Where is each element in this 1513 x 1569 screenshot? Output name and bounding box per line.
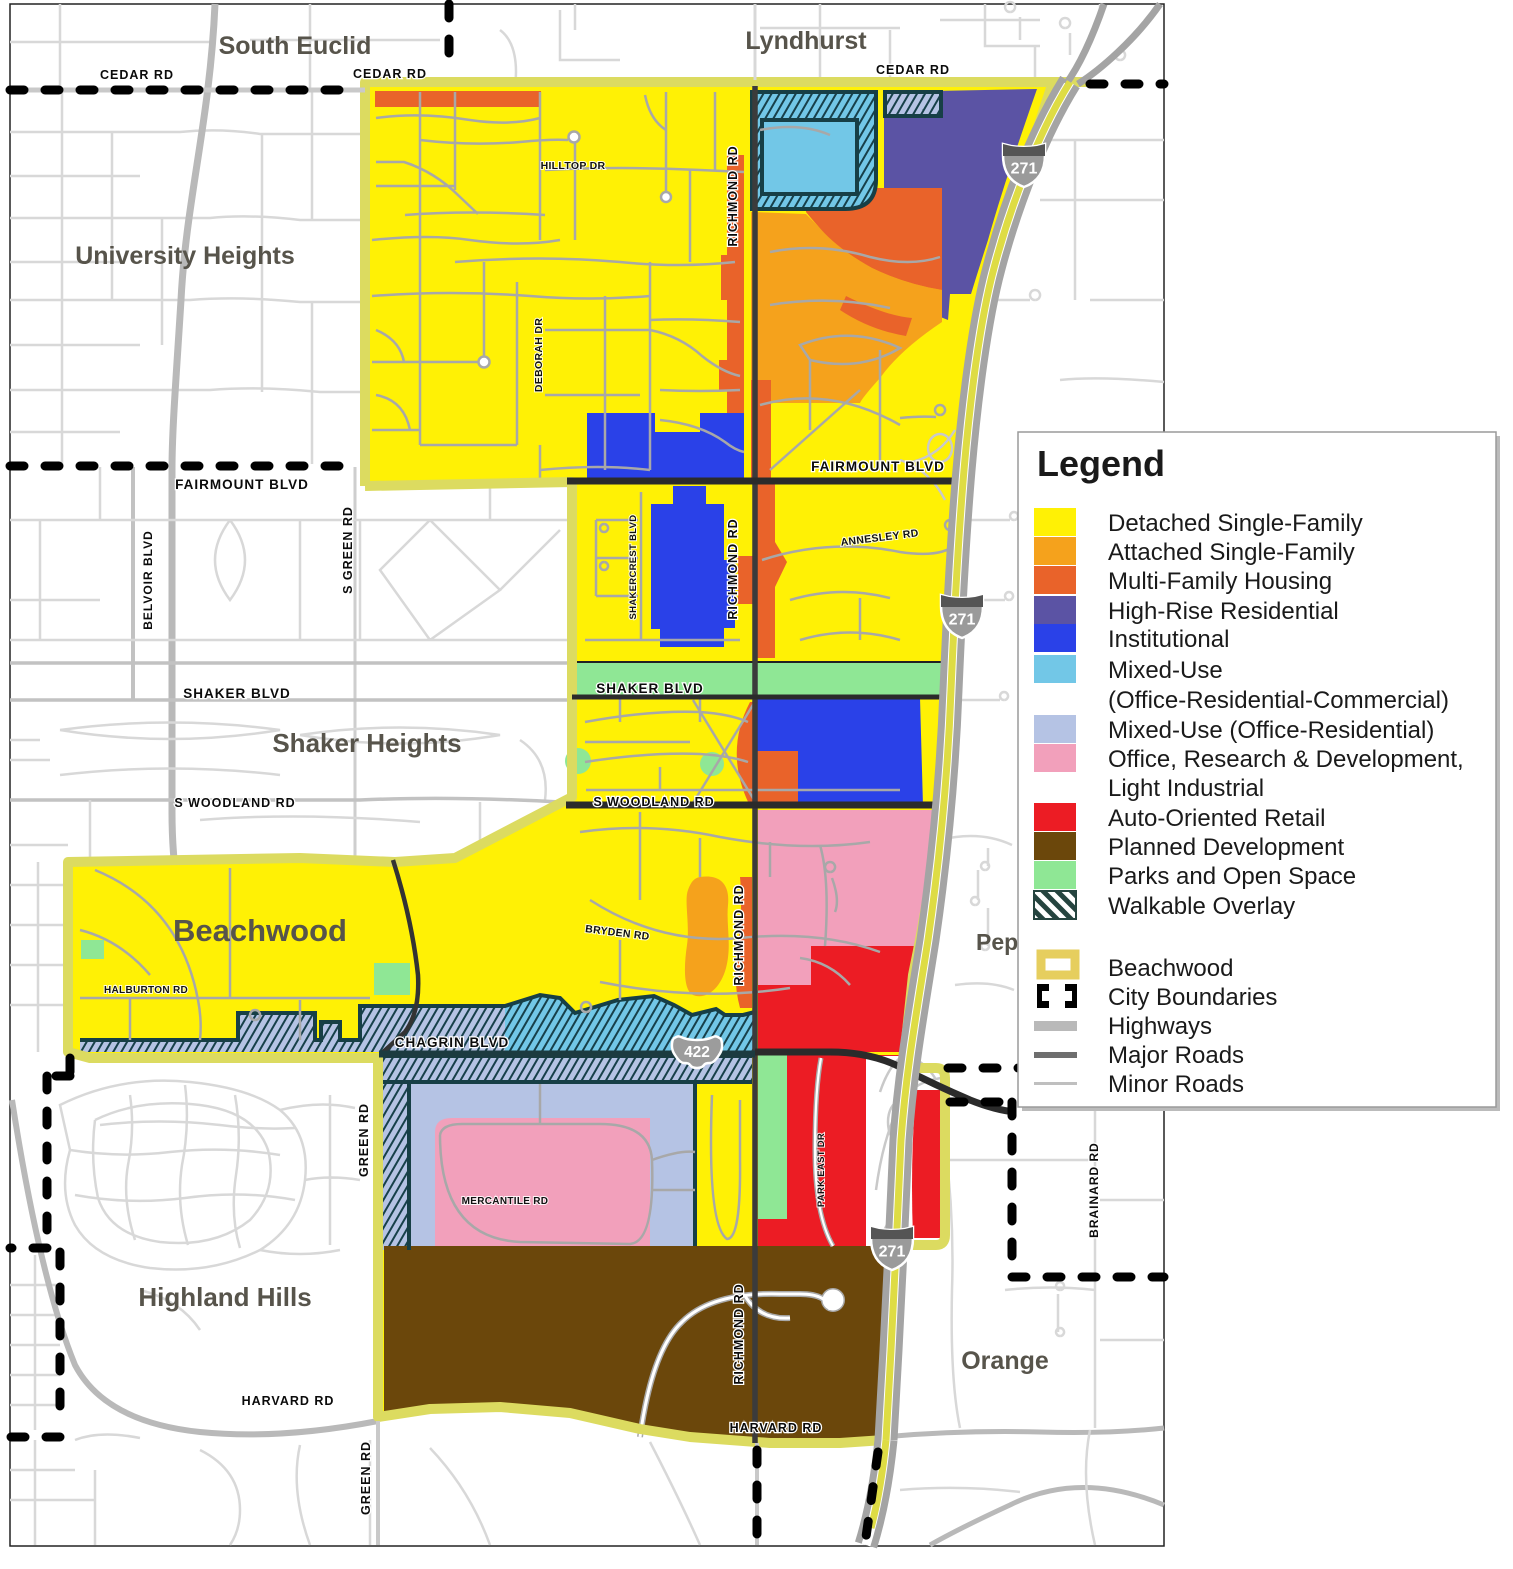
svg-text:FAIRMOUNT BLVD: FAIRMOUNT BLVD: [811, 459, 945, 474]
svg-text:Attached Single-Family: Attached Single-Family: [1108, 539, 1355, 566]
svg-text:SHAKER BLVD: SHAKER BLVD: [183, 686, 291, 701]
svg-text:Multi-Family Housing: Multi-Family Housing: [1108, 568, 1332, 595]
svg-text:MERCANTILE RD: MERCANTILE RD: [462, 1196, 549, 1207]
svg-text:CEDAR RD: CEDAR RD: [876, 63, 950, 77]
svg-text:CEDAR RD: CEDAR RD: [100, 68, 174, 82]
svg-text:High-Rise Residential: High-Rise Residential: [1108, 598, 1339, 625]
svg-text:PARK EAST DR: PARK EAST DR: [816, 1133, 827, 1207]
svg-text:Planned Development: Planned Development: [1108, 834, 1344, 861]
svg-text:Highland Hills: Highland Hills: [138, 1282, 311, 1312]
svg-text:Detached Single-Family: Detached Single-Family: [1108, 510, 1363, 537]
svg-text:S GREEN RD: S GREEN RD: [341, 506, 355, 594]
svg-text:Office, Research & Development: Office, Research & Development,: [1108, 746, 1464, 773]
svg-text:RICHMOND RD: RICHMOND RD: [726, 518, 740, 619]
svg-text:CEDAR RD: CEDAR RD: [353, 67, 427, 81]
svg-text:Light Industrial: Light Industrial: [1108, 775, 1264, 802]
svg-text:Institutional: Institutional: [1108, 626, 1229, 653]
svg-text:RICHMOND RD: RICHMOND RD: [732, 884, 746, 985]
svg-text:Highways: Highways: [1108, 1013, 1212, 1040]
svg-text:HALBURTON RD: HALBURTON RD: [104, 985, 188, 996]
svg-text:Major Roads: Major Roads: [1108, 1042, 1244, 1069]
svg-text:Auto-Oriented Retail: Auto-Oriented Retail: [1108, 805, 1325, 832]
svg-text:Minor Roads: Minor Roads: [1108, 1071, 1244, 1098]
svg-text:BELVOIR BLVD: BELVOIR BLVD: [141, 530, 155, 630]
svg-text:GREEN RD: GREEN RD: [357, 1103, 371, 1177]
svg-text:CHAGRIN BLVD: CHAGRIN BLVD: [395, 1035, 510, 1050]
svg-text:Walkable Overlay: Walkable Overlay: [1108, 893, 1295, 920]
svg-text:Legend: Legend: [1037, 443, 1165, 484]
svg-text:Beachwood: Beachwood: [1108, 955, 1233, 982]
svg-text:HILLTOP DR: HILLTOP DR: [541, 160, 606, 172]
svg-text:(Office-Residential-Commercial: (Office-Residential-Commercial): [1108, 687, 1449, 714]
svg-text:S WOODLAND RD: S WOODLAND RD: [174, 796, 295, 810]
svg-text:Beachwood: Beachwood: [173, 913, 347, 948]
svg-text:GREEN RD: GREEN RD: [359, 1441, 373, 1515]
svg-text:422: 422: [684, 1044, 710, 1061]
svg-text:Parks and Open Space: Parks and Open Space: [1108, 863, 1356, 890]
svg-text:Mixed-Use: Mixed-Use: [1108, 657, 1223, 684]
svg-text:University Heights: University Heights: [75, 242, 295, 270]
svg-text:Lyndhurst: Lyndhurst: [745, 27, 867, 55]
svg-text:Orange: Orange: [961, 1347, 1049, 1375]
svg-text:BRAINARD RD: BRAINARD RD: [1087, 1142, 1101, 1238]
svg-text:RICHMOND RD: RICHMOND RD: [726, 145, 740, 246]
svg-text:S WOODLAND RD: S WOODLAND RD: [593, 795, 714, 809]
svg-text:HARVARD RD: HARVARD RD: [242, 1394, 335, 1408]
svg-text:DEBORAH DR: DEBORAH DR: [533, 318, 545, 392]
svg-text:South Euclid: South Euclid: [219, 32, 372, 60]
svg-text:Shaker Heights: Shaker Heights: [272, 728, 461, 758]
svg-text:RICHMOND RD: RICHMOND RD: [732, 1283, 746, 1384]
svg-text:SHAKER BLVD: SHAKER BLVD: [596, 681, 704, 696]
svg-text:HARVARD RD: HARVARD RD: [730, 1421, 823, 1435]
svg-text:Mixed-Use (Office-Residential): Mixed-Use (Office-Residential): [1108, 717, 1434, 744]
svg-text:SHAKERCREST BLVD: SHAKERCREST BLVD: [628, 515, 639, 620]
svg-text:271: 271: [1011, 161, 1038, 178]
svg-text:City Boundaries: City Boundaries: [1108, 984, 1277, 1011]
svg-text:FAIRMOUNT BLVD: FAIRMOUNT BLVD: [175, 477, 309, 492]
